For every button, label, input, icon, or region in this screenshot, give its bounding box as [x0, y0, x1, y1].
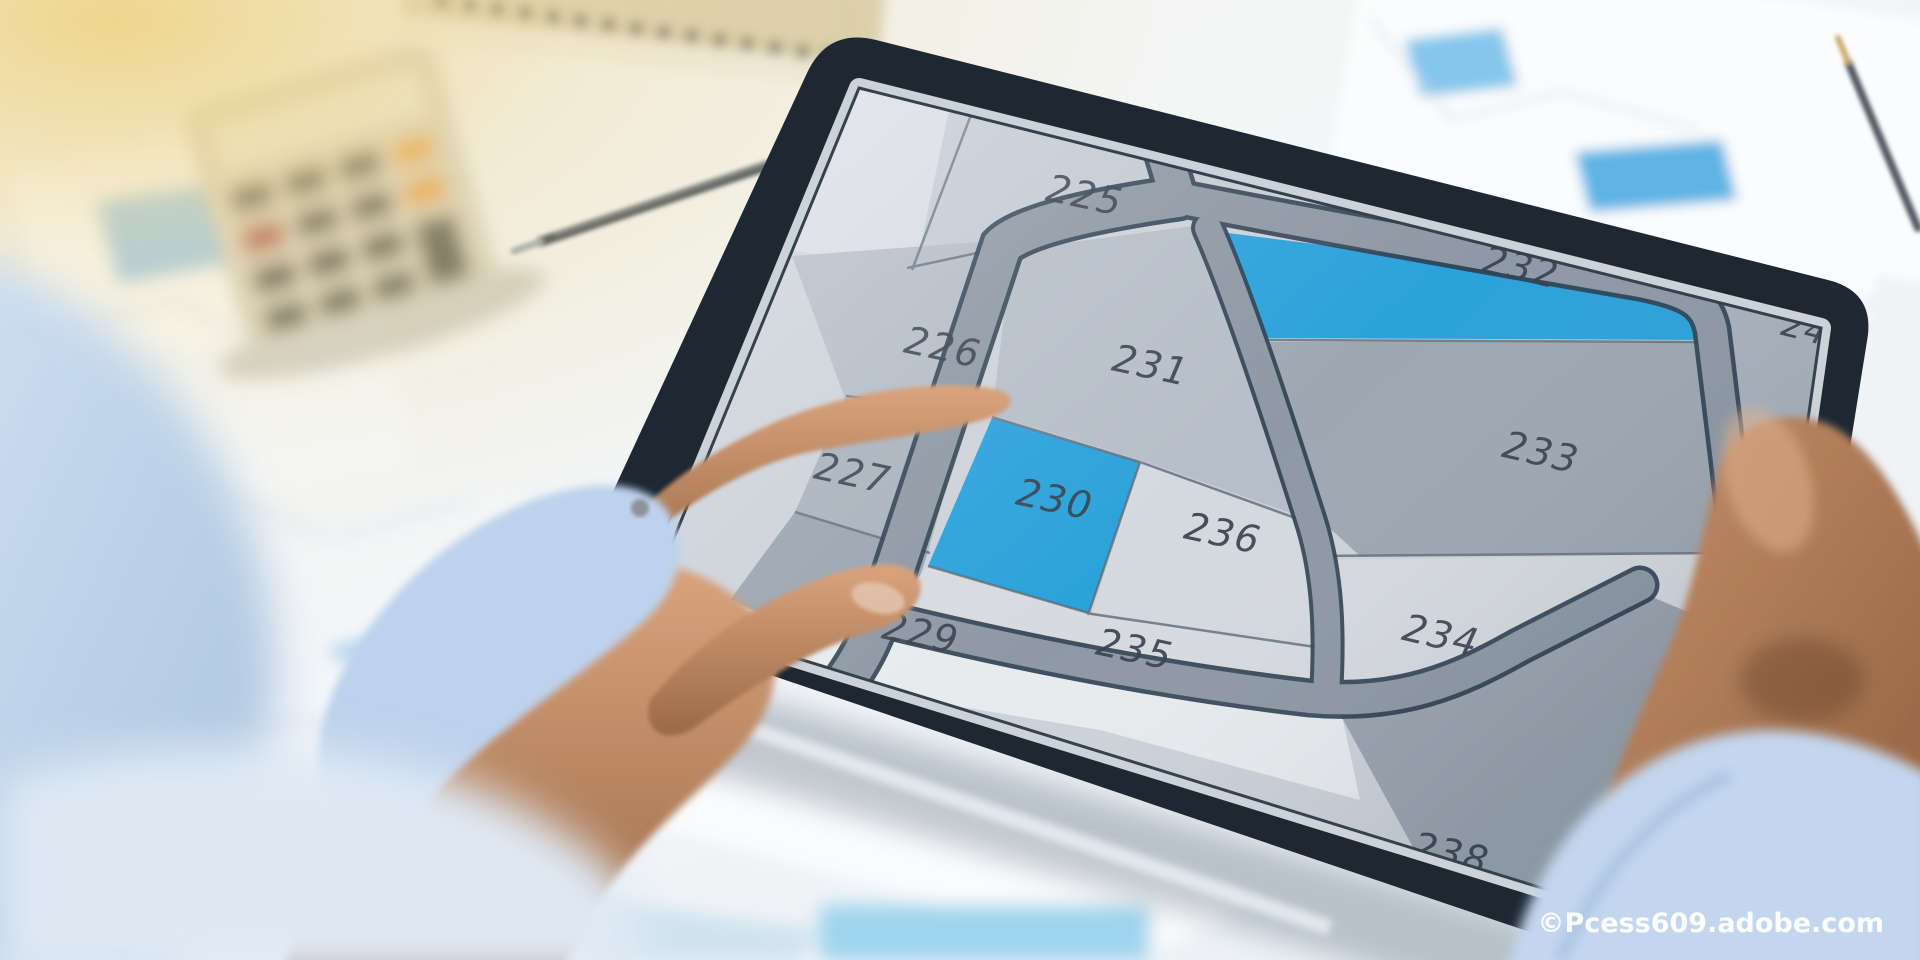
watermark-credit: ©Pcess609.adobe.com	[1537, 908, 1884, 939]
right-hand-shadow	[1740, 638, 1864, 722]
wrist-bracelet	[631, 499, 649, 517]
photo-scene: 225 226 227 229 230 231 232 233 234 235 …	[0, 0, 1920, 960]
